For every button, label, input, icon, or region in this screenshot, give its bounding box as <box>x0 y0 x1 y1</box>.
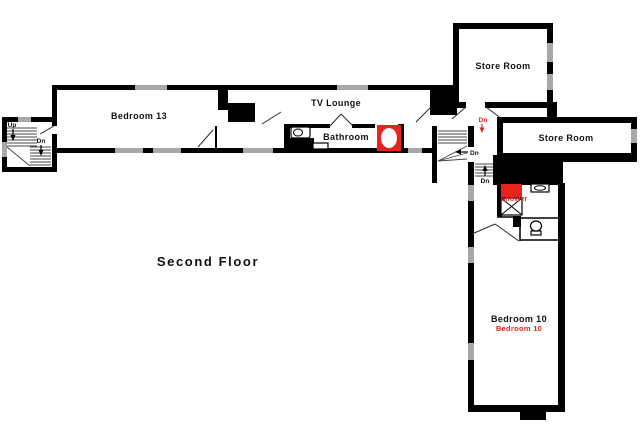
store-room-top-label: Store Room <box>475 61 530 71</box>
bathroom-label: Bathroom <box>323 132 369 142</box>
floorplan: Bedroom 13 TV Lounge Bathroom Store Room… <box>0 0 640 427</box>
shower-room-sink-fixture <box>531 184 549 192</box>
floor-title: Second Floor <box>157 254 259 269</box>
left-stairs-treads <box>7 128 51 166</box>
stairs-up-label: Up <box>8 122 17 129</box>
stairs-down-landing-label: Dn <box>479 117 488 124</box>
bedroom10-label-red: Bedroom 10 <box>496 324 542 333</box>
stairs-down-mid-label: Dn <box>470 150 479 157</box>
bedroom10-label: Bedroom 10 <box>491 314 547 324</box>
store-room-right-label: Store Room <box>538 133 593 143</box>
down-arrow-landing-icon <box>480 124 485 133</box>
down-arrow-mid-icon <box>455 150 468 155</box>
store-room-top-walls <box>453 23 557 123</box>
windows <box>2 43 637 360</box>
floorplan-canvas: Bedroom 13 TV Lounge Bathroom Store Room… <box>0 0 640 427</box>
nook-toilet-fixture <box>531 221 542 235</box>
tv-lounge-label: TV Lounge <box>311 98 361 108</box>
bedroom13-label: Bedroom 13 <box>111 111 167 121</box>
interior-partitions <box>497 217 558 241</box>
bathroom-sink-fixture <box>313 143 328 149</box>
shower-label: Shower <box>500 196 527 203</box>
door-swing-lines <box>40 107 519 241</box>
bathtub-fixture <box>377 125 401 151</box>
bathroom-toilet-fixture <box>291 127 310 138</box>
mid-stairs-treads <box>438 131 467 161</box>
stairs-down-lower-label: Dn <box>481 178 490 185</box>
stairs-down-left-label: Dn <box>37 138 46 145</box>
